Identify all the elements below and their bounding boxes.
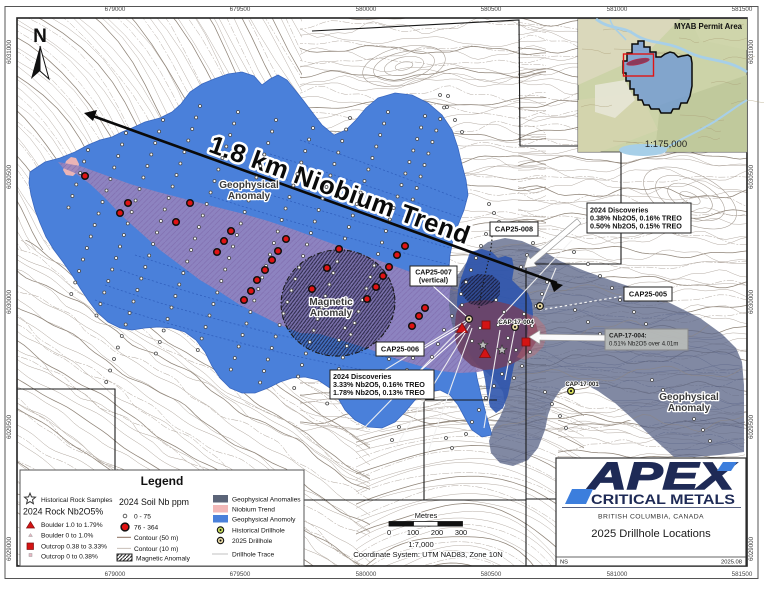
svg-text:Boulder 1.0 to 1.79%: Boulder 1.0 to 1.79% bbox=[41, 522, 103, 529]
svg-text:N: N bbox=[33, 26, 47, 47]
svg-text:Anomaly: Anomaly bbox=[310, 308, 353, 319]
svg-text:581000: 581000 bbox=[607, 571, 628, 578]
svg-text:6029500: 6029500 bbox=[6, 414, 13, 439]
svg-text:2024 Soil Nb ppm: 2024 Soil Nb ppm bbox=[119, 497, 189, 507]
svg-text:6029500: 6029500 bbox=[748, 414, 755, 439]
svg-text:0 - 75: 0 - 75 bbox=[134, 514, 151, 521]
svg-text:CAP25-008: CAP25-008 bbox=[495, 225, 533, 234]
svg-text:Anomaly: Anomaly bbox=[668, 403, 711, 414]
svg-text:Drillhole Trace: Drillhole Trace bbox=[232, 552, 274, 559]
svg-text:580500: 580500 bbox=[481, 571, 502, 578]
svg-text:581000: 581000 bbox=[607, 6, 628, 13]
svg-text:Niobium Trend: Niobium Trend bbox=[232, 507, 275, 514]
svg-text:2025 Drillhole: 2025 Drillhole bbox=[232, 538, 273, 545]
svg-text:6030000: 6030000 bbox=[6, 289, 13, 314]
svg-text:Boulder 0 to 1.0%: Boulder 0 to 1.0% bbox=[41, 533, 94, 540]
svg-text:NS: NS bbox=[560, 560, 568, 566]
svg-text:Contour (50 m): Contour (50 m) bbox=[134, 535, 178, 542]
svg-text:(vertical): (vertical) bbox=[419, 278, 448, 285]
svg-text:Historical Rock Samples: Historical Rock Samples bbox=[41, 497, 113, 504]
svg-text:679000: 679000 bbox=[105, 571, 126, 578]
svg-text:679500: 679500 bbox=[230, 571, 251, 578]
svg-text:1.78% Nb2O5, 0.13% TREO: 1.78% Nb2O5, 0.13% TREO bbox=[333, 388, 425, 397]
svg-text:6031000: 6031000 bbox=[6, 39, 13, 64]
svg-text:MYAB Permit Area: MYAB Permit Area bbox=[674, 22, 743, 31]
svg-text:200: 200 bbox=[431, 528, 443, 537]
svg-text:6030500: 6030500 bbox=[748, 164, 755, 189]
svg-text:Geophysical Anomoly: Geophysical Anomoly bbox=[232, 517, 296, 524]
svg-text:2025.08: 2025.08 bbox=[721, 560, 742, 566]
svg-text:Contour (10 m): Contour (10 m) bbox=[134, 546, 178, 553]
svg-text:6029000: 6029000 bbox=[6, 536, 13, 561]
svg-text:0.51% Nb2O5 over 4.01m: 0.51% Nb2O5 over 4.01m bbox=[609, 342, 678, 348]
svg-text:76 - 364: 76 - 364 bbox=[134, 525, 159, 532]
svg-text:CAP25-007: CAP25-007 bbox=[415, 269, 452, 276]
svg-text:Outcrop 0 to 0.38%: Outcrop 0 to 0.38% bbox=[41, 554, 98, 561]
svg-text:581500: 581500 bbox=[732, 6, 753, 13]
svg-text:Metres: Metres bbox=[415, 511, 438, 520]
svg-text:300: 300 bbox=[455, 528, 467, 537]
svg-text:679500: 679500 bbox=[230, 6, 251, 13]
svg-text:CAP25-006: CAP25-006 bbox=[381, 345, 419, 354]
svg-text:6031000: 6031000 bbox=[748, 39, 755, 64]
svg-text:0: 0 bbox=[387, 528, 391, 537]
svg-text:Anomaly: Anomaly bbox=[228, 191, 271, 202]
svg-text:Magnetic: Magnetic bbox=[309, 297, 353, 308]
svg-text:Magnetic Anomaly: Magnetic Anomaly bbox=[136, 556, 191, 563]
svg-text:Geophysical: Geophysical bbox=[219, 180, 279, 191]
svg-text:6029000: 6029000 bbox=[748, 536, 755, 561]
svg-text:Outcrop 0.38 to 3.33%: Outcrop 0.38 to 3.33% bbox=[41, 544, 107, 551]
svg-text:CRITICAL METALS: CRITICAL METALS bbox=[591, 492, 735, 507]
svg-text:2024 Rock Nb2O5%: 2024 Rock Nb2O5% bbox=[23, 507, 103, 517]
svg-text:6030500: 6030500 bbox=[6, 164, 13, 189]
svg-text:CAP-17-004: CAP-17-004 bbox=[498, 319, 534, 326]
svg-text:580000: 580000 bbox=[356, 6, 377, 13]
svg-text:CAP-17-001: CAP-17-001 bbox=[565, 382, 599, 388]
svg-text:Geophysical Anomalies: Geophysical Anomalies bbox=[232, 497, 301, 504]
svg-text:CAP25-005: CAP25-005 bbox=[629, 290, 667, 299]
svg-text:0.50% Nb2O5, 0.15% TREO: 0.50% Nb2O5, 0.15% TREO bbox=[590, 222, 682, 231]
svg-text:679000: 679000 bbox=[105, 6, 126, 13]
svg-text:Historical Drillhole: Historical Drillhole bbox=[232, 528, 285, 535]
svg-text:2025 Drillhole Locations: 2025 Drillhole Locations bbox=[591, 528, 711, 540]
svg-text:580500: 580500 bbox=[481, 6, 502, 13]
svg-text:1:7,000: 1:7,000 bbox=[408, 540, 433, 549]
svg-text:BRITISH COLUMBIA, CANADA: BRITISH COLUMBIA, CANADA bbox=[598, 514, 704, 521]
svg-text:Geophysical: Geophysical bbox=[659, 392, 719, 403]
svg-text:581500: 581500 bbox=[732, 571, 753, 578]
svg-text:6030000: 6030000 bbox=[748, 289, 755, 314]
svg-text:CAP-17-004:: CAP-17-004: bbox=[609, 333, 647, 340]
svg-text:Legend: Legend bbox=[141, 474, 184, 488]
svg-text:Coordinate System: UTM NAD83,: Coordinate System: UTM NAD83, Zone 10N bbox=[353, 550, 502, 559]
svg-text:100: 100 bbox=[407, 528, 419, 537]
svg-text:580000: 580000 bbox=[356, 571, 377, 578]
svg-text:1:175,000: 1:175,000 bbox=[645, 139, 687, 150]
